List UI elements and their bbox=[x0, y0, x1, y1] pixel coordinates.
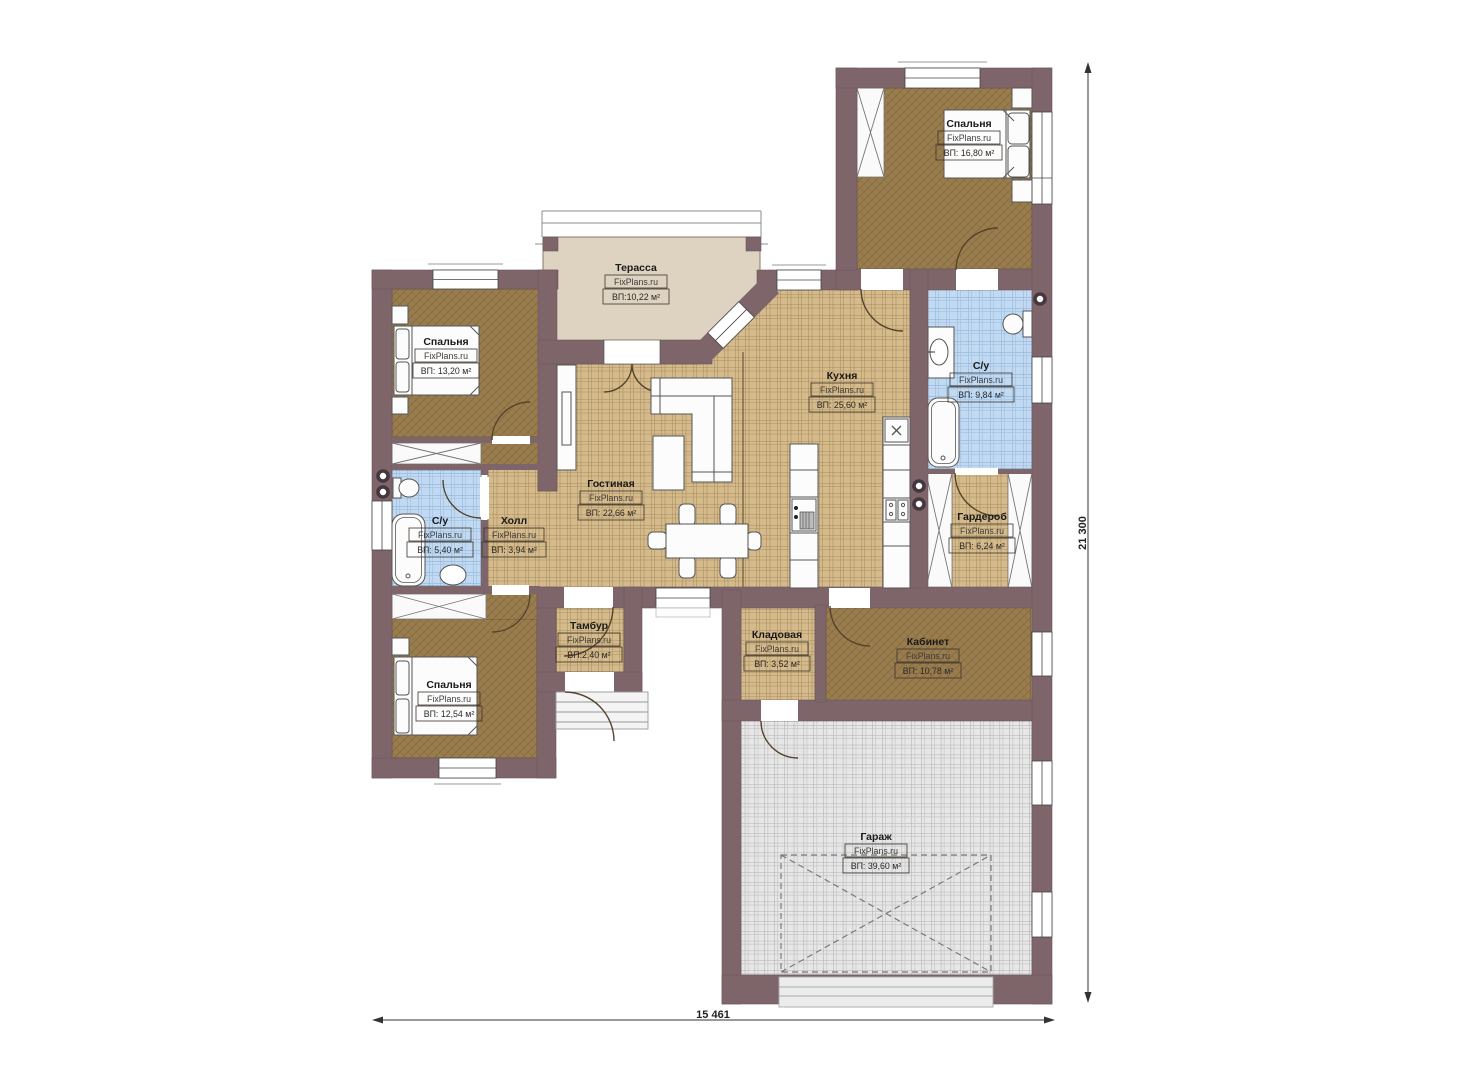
svg-text:ВП: 25,60 м²: ВП: 25,60 м² bbox=[817, 400, 868, 410]
svg-text:Холл: Холл bbox=[501, 515, 527, 527]
svg-text:FixPlans.ru: FixPlans.ru bbox=[567, 635, 611, 645]
svg-text:Кабинет: Кабинет bbox=[907, 636, 950, 648]
svg-text:FixPlans.ru: FixPlans.ru bbox=[614, 277, 658, 287]
svg-text:FixPlans.ru: FixPlans.ru bbox=[947, 133, 991, 143]
svg-text:ВП: 39,60 м²: ВП: 39,60 м² bbox=[851, 861, 902, 871]
svg-text:FixPlans.ru: FixPlans.ru bbox=[424, 351, 468, 361]
svg-text:Гостиная: Гостиная bbox=[587, 478, 634, 490]
svg-text:Спальня: Спальня bbox=[426, 679, 471, 691]
svg-text:Кухня: Кухня bbox=[827, 370, 858, 382]
svg-text:FixPlans.ru: FixPlans.ru bbox=[427, 694, 471, 704]
svg-text:FixPlans.ru: FixPlans.ru bbox=[960, 526, 1004, 536]
svg-text:FixPlans.ru: FixPlans.ru bbox=[589, 493, 633, 503]
svg-text:ВП: 5,40 м²: ВП: 5,40 м² bbox=[417, 545, 463, 555]
svg-text:ВП: 10,78 м²: ВП: 10,78 м² bbox=[903, 666, 954, 676]
svg-text:ВП:2,40 м²: ВП:2,40 м² bbox=[567, 650, 610, 660]
svg-text:Спальня: Спальня bbox=[946, 118, 991, 130]
svg-text:ВП: 13,20 м²: ВП: 13,20 м² bbox=[421, 366, 472, 376]
svg-text:Спальня: Спальня bbox=[423, 336, 468, 348]
svg-text:С/у: С/у bbox=[973, 360, 990, 372]
svg-text:ВП: 16,80 м²: ВП: 16,80 м² bbox=[944, 148, 995, 158]
svg-text:FixPlans.ru: FixPlans.ru bbox=[755, 644, 799, 654]
svg-text:ВП: 9,84 м²: ВП: 9,84 м² bbox=[958, 390, 1004, 400]
svg-text:FixPlans.ru: FixPlans.ru bbox=[418, 530, 462, 540]
svg-text:FixPlans.ru: FixPlans.ru bbox=[492, 530, 536, 540]
svg-text:FixPlans.ru: FixPlans.ru bbox=[854, 846, 898, 856]
svg-text:Гараж: Гараж bbox=[860, 831, 892, 843]
svg-text:FixPlans.ru: FixPlans.ru bbox=[959, 375, 1003, 385]
svg-text:15 461: 15 461 bbox=[696, 1009, 730, 1021]
svg-text:ВП: 12,54 м²: ВП: 12,54 м² bbox=[424, 709, 475, 719]
svg-text:Гардероб: Гардероб bbox=[957, 511, 1007, 523]
svg-text:Терасса: Терасса bbox=[615, 262, 657, 274]
svg-text:ВП: 6,24 м²: ВП: 6,24 м² bbox=[959, 541, 1005, 551]
svg-text:С/у: С/у bbox=[432, 515, 449, 527]
svg-text:FixPlans.ru: FixPlans.ru bbox=[820, 385, 864, 395]
svg-text:ВП: 22,66 м²: ВП: 22,66 м² bbox=[586, 508, 637, 518]
svg-text:ВП: 3,52 м²: ВП: 3,52 м² bbox=[754, 659, 800, 669]
svg-text:21 300: 21 300 bbox=[1077, 516, 1089, 550]
svg-text:Кладовая: Кладовая bbox=[752, 629, 802, 641]
svg-text:ВП: 3,94 м²: ВП: 3,94 м² bbox=[491, 545, 537, 555]
svg-text:ВП:10,22 м²: ВП:10,22 м² bbox=[612, 292, 660, 302]
svg-text:FixPlans.ru: FixPlans.ru bbox=[906, 651, 950, 661]
svg-text:Тамбур: Тамбур bbox=[570, 620, 608, 632]
